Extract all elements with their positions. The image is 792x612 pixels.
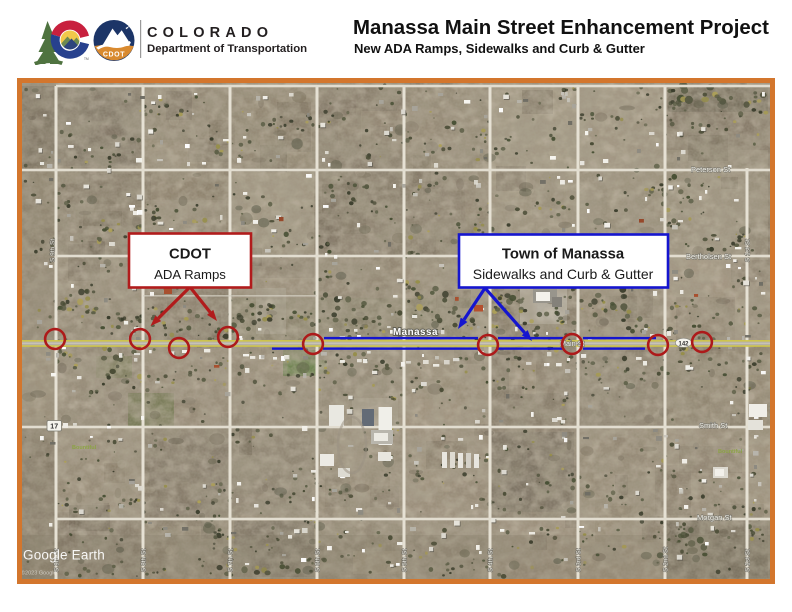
svg-text:Department of Transportation: Department of Transportation bbox=[147, 43, 307, 55]
svg-text:Smith St: Smith St bbox=[699, 421, 728, 430]
svg-text:17: 17 bbox=[50, 424, 58, 431]
svg-text:Bountiful: Bountiful bbox=[72, 445, 97, 451]
svg-text:©2023 Google: ©2023 Google bbox=[21, 570, 57, 577]
svg-text:142: 142 bbox=[678, 341, 689, 347]
svg-text:ADA Ramps: ADA Ramps bbox=[154, 267, 226, 282]
svg-text:S 1st St: S 1st St bbox=[745, 549, 752, 572]
svg-text:S 1st St: S 1st St bbox=[745, 239, 752, 262]
svg-text:S 2nd St: S 2nd St bbox=[663, 547, 670, 572]
svg-text:S 7th St: S 7th St bbox=[228, 549, 235, 572]
svg-text:S 8th St: S 8th St bbox=[141, 549, 148, 572]
svg-text:Manassa: Manassa bbox=[393, 327, 438, 338]
svg-text:S 5th St: S 5th St bbox=[402, 549, 409, 572]
svg-text:TM: TM bbox=[84, 57, 89, 61]
svg-text:S 6th St: S 6th St bbox=[315, 549, 322, 572]
svg-text:Sidewalks and Curb & Gutter: Sidewalks and Curb & Gutter bbox=[473, 266, 654, 282]
svg-text:Peterson St: Peterson St bbox=[691, 165, 731, 174]
svg-text:Google Earth: Google Earth bbox=[23, 548, 105, 563]
svg-text:COLORADO: COLORADO bbox=[147, 25, 273, 41]
svg-text:S 3rd St: S 3rd St bbox=[576, 548, 583, 572]
svg-text:S 4th St: S 4th St bbox=[488, 549, 495, 572]
svg-text:Bertholsen St: Bertholsen St bbox=[686, 252, 732, 261]
svg-text:CDOT: CDOT bbox=[103, 52, 125, 59]
svg-text:Bountiful: Bountiful bbox=[718, 449, 743, 455]
svg-text:Town of Manassa: Town of Manassa bbox=[502, 247, 625, 263]
svg-text:Morgan St: Morgan St bbox=[697, 513, 733, 522]
svg-text:CDOT: CDOT bbox=[169, 247, 211, 263]
svg-text:S 9th St: S 9th St bbox=[50, 239, 57, 262]
